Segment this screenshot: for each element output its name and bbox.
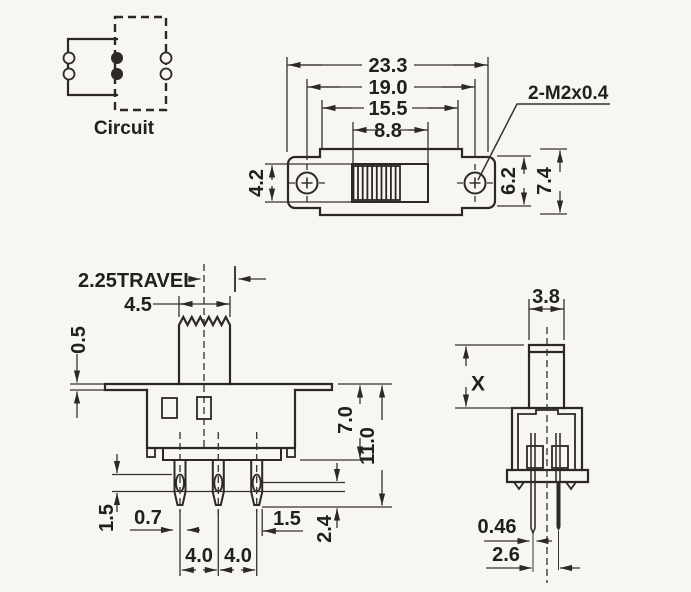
dim-4-0-pitch: 4.0 4.0 — [180, 510, 257, 576]
circuit-label: Circuit — [94, 118, 155, 139]
technical-drawing: Circuit 23.3 — [0, 0, 691, 592]
dim-6-2: 6.2 — [497, 156, 531, 206]
side-pin-back — [557, 482, 561, 531]
dim-4-2: 4.2 — [246, 164, 352, 202]
dim-0-5: 0.5 — [68, 326, 105, 418]
front-base-block — [163, 448, 281, 460]
svg-text:19.0: 19.0 — [369, 77, 408, 99]
knob-hatch-lines — [358, 166, 396, 200]
front-flange — [105, 384, 332, 390]
svg-text:7.0: 7.0 — [335, 406, 357, 434]
dim-8-8: 8.8 — [353, 120, 428, 164]
svg-text:4.0: 4.0 — [185, 545, 213, 567]
svg-text:4.0: 4.0 — [224, 545, 252, 567]
dim-x: X — [455, 345, 524, 408]
dim-1-5-right: 1.5 — [262, 508, 303, 536]
dim-0-46: 0.46 — [478, 516, 552, 541]
svg-text:4.5: 4.5 — [124, 294, 152, 316]
dim-7-4: 7.4 — [534, 149, 567, 214]
terminal-centerlines — [180, 432, 257, 520]
svg-text:23.3: 23.3 — [369, 55, 408, 77]
svg-text:1.5: 1.5 — [273, 508, 301, 530]
svg-text:0.46: 0.46 — [478, 516, 517, 538]
svg-text:8.8: 8.8 — [374, 120, 402, 142]
svg-text:7.4: 7.4 — [534, 166, 556, 195]
circuit-terminal-open — [161, 69, 172, 80]
circuit-dashed-box — [115, 17, 166, 110]
circuit-terminal-open — [161, 53, 172, 64]
circuit-terminal-filled — [111, 52, 123, 64]
front-knob — [179, 317, 230, 384]
drawing-page: Circuit 23.3 — [0, 0, 691, 592]
circuit-common-bracket — [68, 39, 117, 95]
front-window-left — [162, 398, 177, 418]
svg-text:1.5: 1.5 — [96, 504, 118, 532]
thread-callout: 2-M2x0.4 — [478, 83, 610, 180]
svg-text:15.5: 15.5 — [369, 98, 408, 120]
mounting-hole-right — [457, 164, 493, 202]
svg-text:0.7: 0.7 — [134, 507, 162, 529]
svg-text:3.8: 3.8 — [532, 286, 560, 308]
svg-text:4.2: 4.2 — [246, 169, 268, 197]
circuit-terminal-filled — [111, 68, 123, 80]
circuit-terminal-open — [64, 53, 75, 64]
front-view: 2.25TRAVEL 4.5 0.5 7.0 11.0 — [68, 264, 392, 576]
svg-text:2.25TRAVEL: 2.25TRAVEL — [78, 270, 195, 292]
mounting-hole-left — [289, 164, 325, 202]
front-foot-right — [287, 448, 295, 457]
svg-text:0.5: 0.5 — [68, 326, 90, 354]
svg-text:11.0: 11.0 — [357, 427, 379, 465]
side-pin-upper-lines — [531, 433, 560, 482]
svg-text:X: X — [471, 373, 485, 396]
side-pin-front — [531, 482, 535, 533]
top-view: 23.3 19.0 15.5 8.8 4.2 — [246, 55, 610, 215]
side-view: 3.8 X 0.46 2.6 — [455, 286, 588, 583]
svg-text:6.2: 6.2 — [498, 167, 520, 195]
circuit-schematic: Circuit — [64, 17, 172, 139]
svg-text:2.6: 2.6 — [492, 544, 520, 566]
thread-note: 2-M2x0.4 — [528, 83, 609, 104]
circuit-terminal-open — [64, 69, 75, 80]
dim-4-5: 4.5 — [124, 294, 230, 317]
dim-travel: 2.25TRAVEL — [78, 270, 266, 292]
dim-0-7: 0.7 — [130, 507, 200, 530]
svg-text:2.4: 2.4 — [314, 514, 336, 543]
dim-11-0: 11.0 — [262, 386, 392, 508]
front-foot-left — [147, 448, 155, 457]
